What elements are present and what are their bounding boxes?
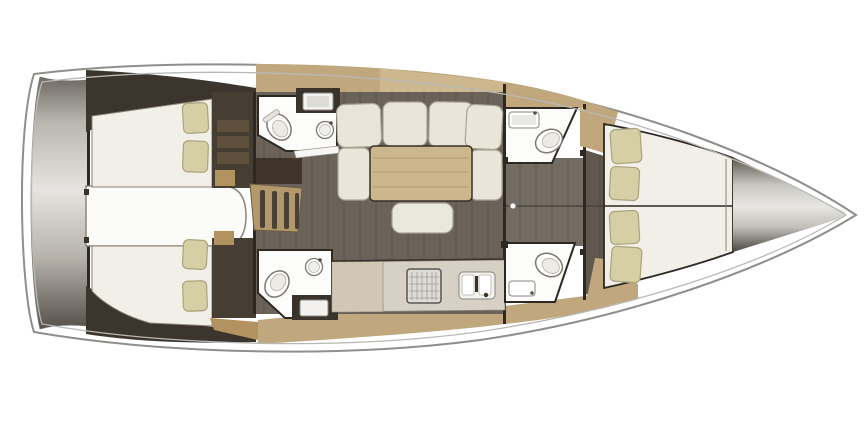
aft-head-port-faucet xyxy=(329,121,333,125)
aft-head-port-vanity-basin-inner xyxy=(307,96,329,107)
passage-doorframe-2 xyxy=(501,241,508,248)
aft-port-locker-step xyxy=(215,170,235,186)
forward-pillow-1 xyxy=(610,128,642,164)
engine-mount-tick-bottom xyxy=(84,237,89,243)
settee-back-cushion-1 xyxy=(336,103,381,148)
aft-head-starboard-sink-bowl xyxy=(309,262,320,273)
saloon-ottoman xyxy=(392,203,453,233)
settee-side-cushion-left xyxy=(338,148,370,200)
passage-doorframe-3 xyxy=(580,150,586,156)
settee-back-cushion-2 xyxy=(383,102,427,146)
passage-door-knob xyxy=(510,203,516,209)
yacht-floorplan-image xyxy=(0,0,866,446)
passage-doorframe-4 xyxy=(580,249,586,255)
settee-side-cushion-right xyxy=(470,150,502,200)
aft-port-wardrobe-shelf-2 xyxy=(217,136,249,148)
aft-port-wardrobe-shelf-3 xyxy=(217,152,249,164)
aft-port-pillow-1 xyxy=(182,102,209,133)
forward-pillow-3 xyxy=(609,210,640,244)
companionway-hood xyxy=(256,158,302,184)
swim-platform xyxy=(31,77,88,329)
passage-floor-planks xyxy=(505,158,585,246)
aft-starboard-wardrobe xyxy=(212,238,256,318)
settee-corner-cushion xyxy=(465,104,503,150)
aft-starboard-pillow-1 xyxy=(182,239,207,269)
forward-pillow-4 xyxy=(610,246,642,283)
aft-head-port-sink-bowl xyxy=(320,125,331,136)
galley-stove xyxy=(407,269,441,303)
aft-port-wardrobe-shelf-1 xyxy=(217,120,249,132)
forward-pillow-2 xyxy=(609,166,640,200)
companionway-step-3 xyxy=(284,192,289,229)
aft-starboard-locker-step xyxy=(214,231,234,245)
floorplan-canvas xyxy=(0,0,866,446)
engine-mount-tick-top xyxy=(84,189,89,195)
fwd-head-port-sink-bowl xyxy=(512,115,536,125)
fwd-head-starboard-faucet xyxy=(530,291,534,295)
aft-head-starboard-vanity-basin xyxy=(300,300,328,316)
saloon-table xyxy=(370,146,472,201)
aft-port-pillow-2 xyxy=(182,141,208,173)
companionway-step-2 xyxy=(272,191,277,229)
aft-head-starboard-faucet xyxy=(318,258,322,262)
companionway-step-1 xyxy=(260,190,265,228)
galley-double-sink xyxy=(459,272,495,299)
fwd-head-port-faucet xyxy=(533,111,537,115)
galley-counter-left xyxy=(332,262,383,312)
companionway-step-4 xyxy=(295,193,299,229)
aft-starboard-pillow-2 xyxy=(182,281,207,312)
